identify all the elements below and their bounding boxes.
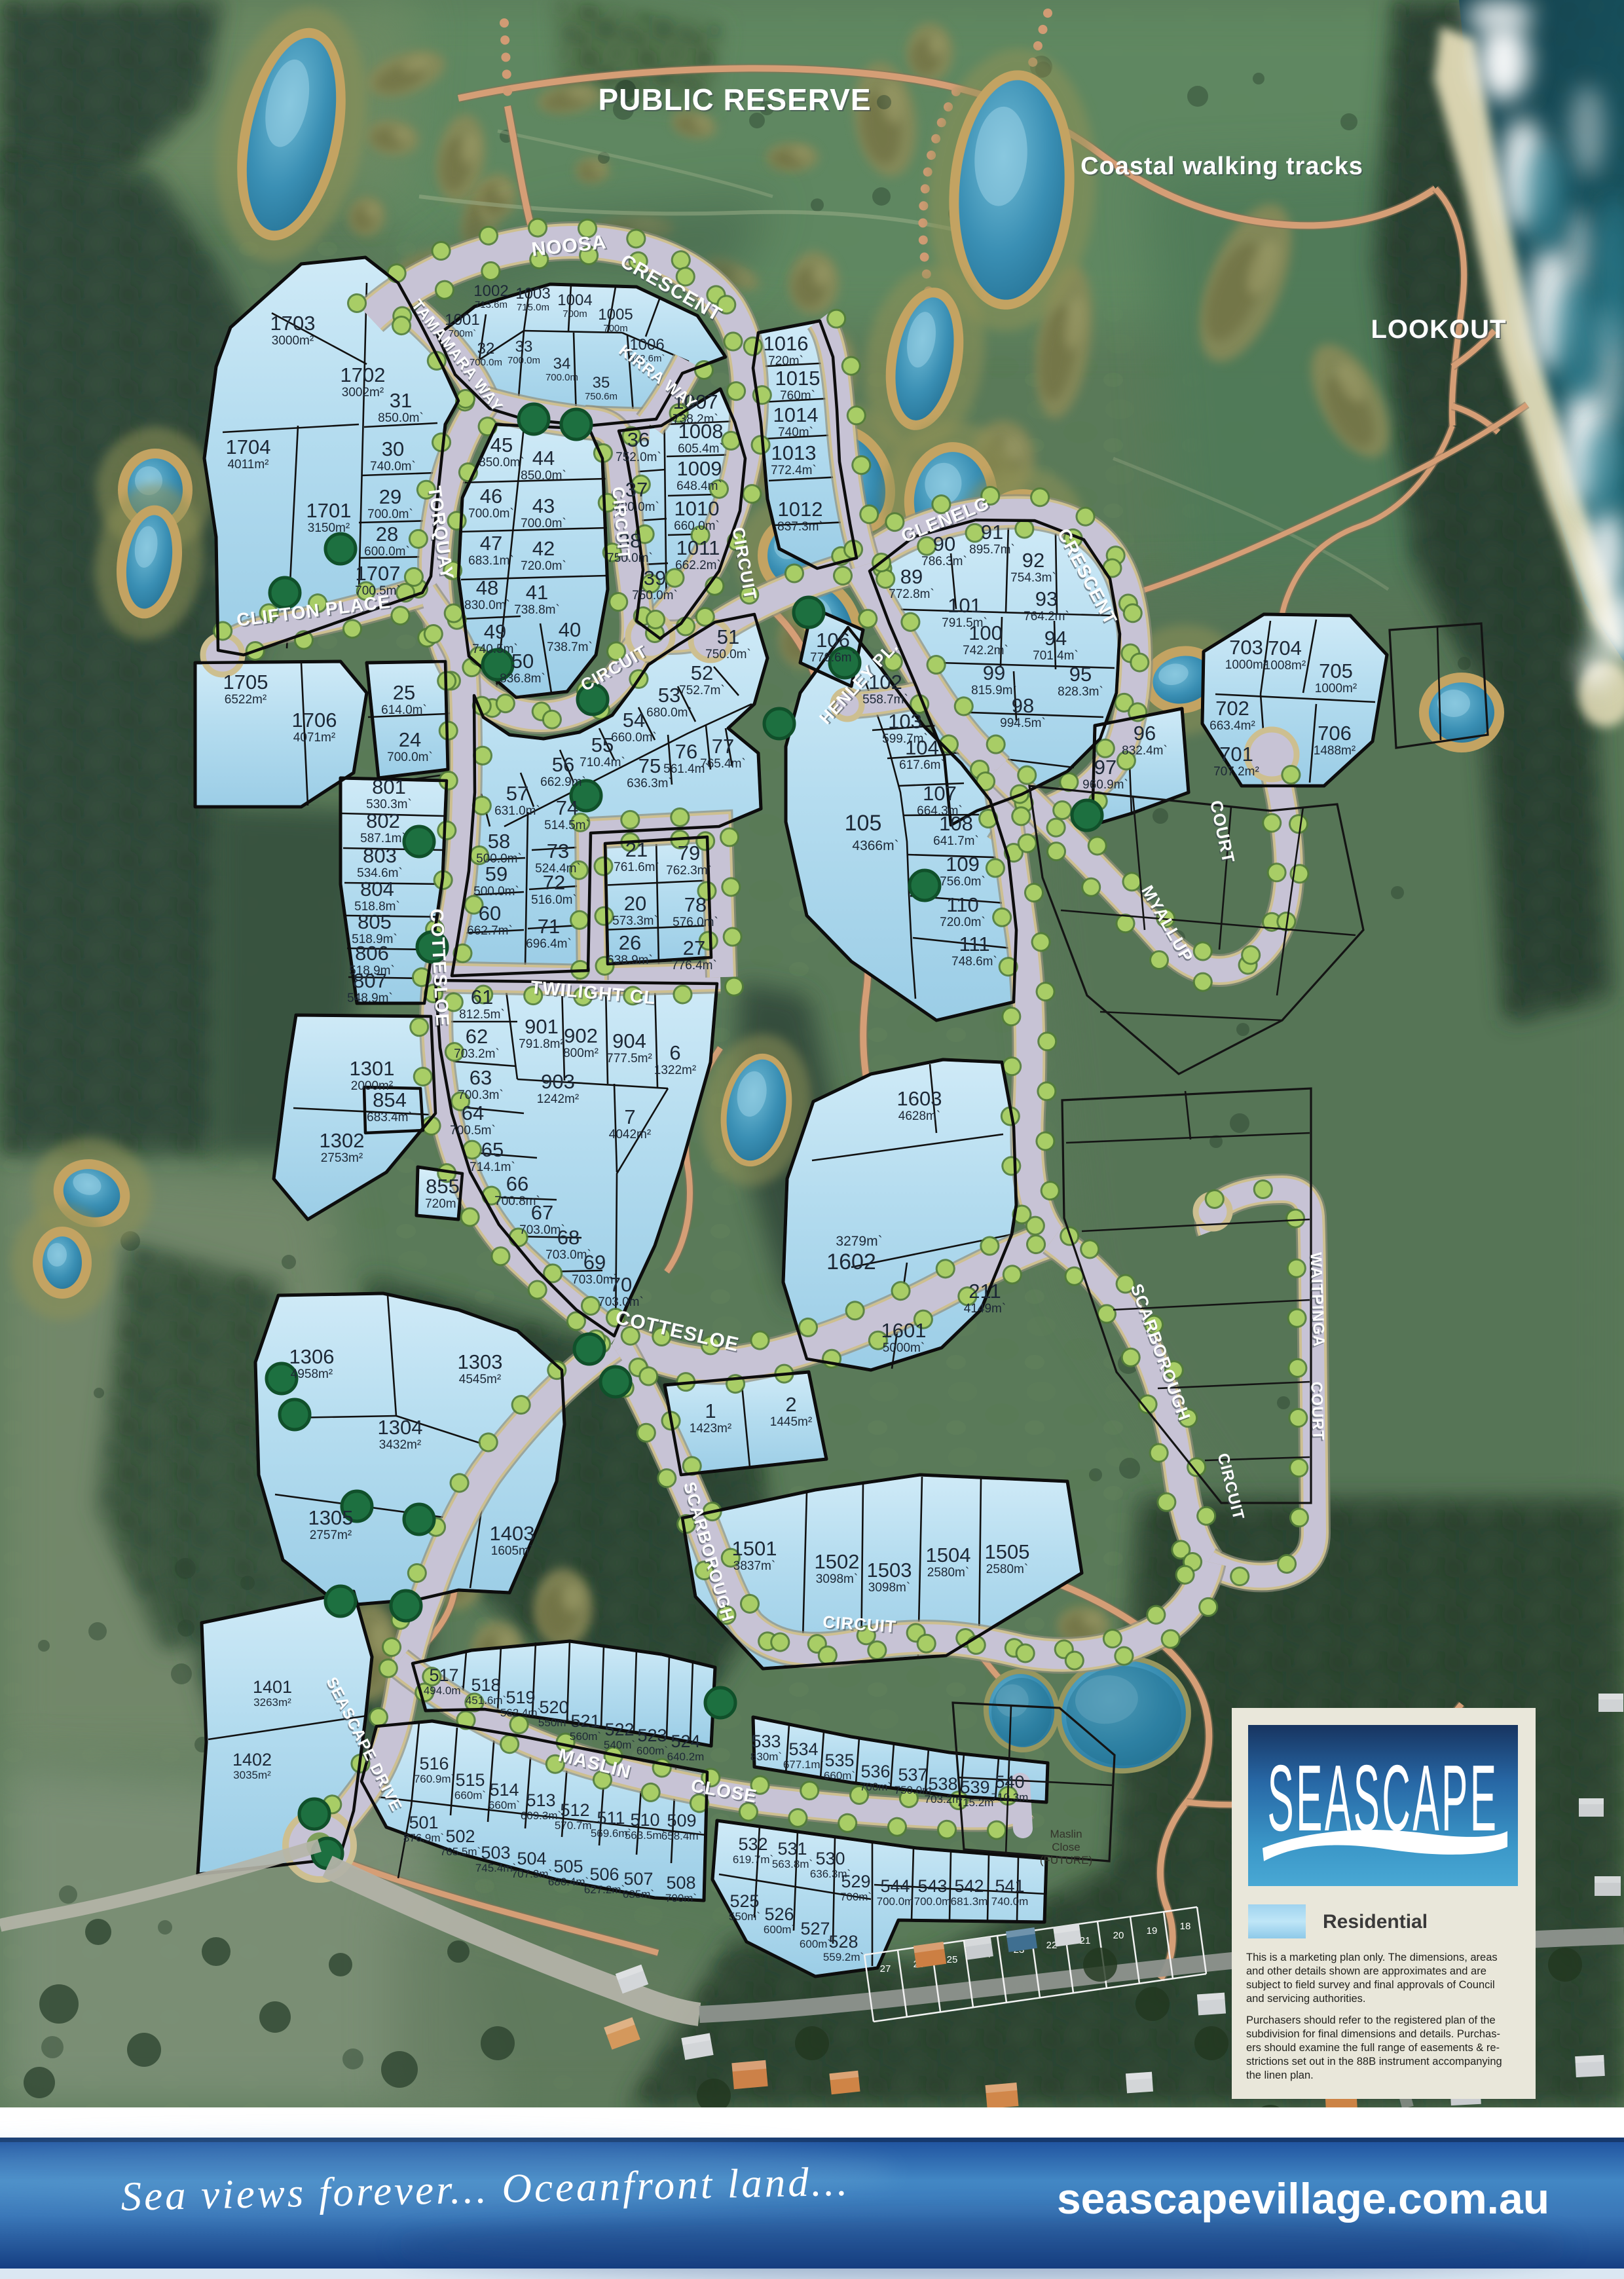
svg-text:700.3m`: 700.3m`	[458, 1088, 504, 1102]
svg-text:3150m²: 3150m²	[308, 521, 350, 535]
svg-text:786.3m`: 786.3m`	[921, 555, 967, 568]
svg-text:534: 534	[788, 1739, 818, 1759]
svg-text:54: 54	[623, 709, 645, 732]
svg-text:660m`: 660m`	[824, 1769, 855, 1782]
svg-text:600m`: 600m`	[637, 1745, 668, 1757]
svg-text:506: 506	[589, 1864, 619, 1884]
svg-text:1003: 1003	[515, 285, 550, 303]
svg-text:703: 703	[1229, 636, 1263, 659]
svg-text:533: 533	[751, 1732, 781, 1751]
svg-text:61: 61	[471, 986, 493, 1009]
svg-text:515: 515	[455, 1770, 485, 1790]
svg-text:101: 101	[948, 594, 982, 617]
svg-text:700.0m`: 700.0m`	[468, 507, 514, 521]
svg-text:75: 75	[638, 754, 661, 777]
svg-text:5000m`: 5000m`	[883, 1341, 925, 1355]
svg-text:70: 70	[610, 1273, 632, 1296]
svg-text:Residential: Residential	[1323, 1911, 1428, 1933]
svg-text:111: 111	[959, 933, 989, 955]
svg-text:527: 527	[800, 1919, 830, 1938]
svg-text:110: 110	[946, 893, 978, 916]
svg-text:700m: 700m	[563, 308, 587, 320]
svg-text:681.3m: 681.3m	[951, 1895, 988, 1908]
svg-text:31: 31	[390, 389, 412, 412]
svg-text:109: 109	[946, 853, 980, 876]
svg-text:1014: 1014	[773, 403, 819, 426]
svg-text:90: 90	[933, 532, 955, 555]
svg-text:1004: 1004	[557, 291, 592, 309]
svg-text:1005: 1005	[598, 306, 633, 324]
svg-text:503: 503	[481, 1843, 510, 1862]
svg-text:700.5m`: 700.5m`	[450, 1124, 496, 1138]
svg-text:96: 96	[1134, 722, 1156, 745]
svg-text:576.0m`: 576.0m`	[673, 916, 718, 929]
svg-text:710.3m: 710.3m	[991, 1791, 1029, 1804]
svg-text:99: 99	[983, 661, 1005, 684]
svg-text:2580m`: 2580m`	[986, 1563, 1028, 1576]
svg-text:660m`: 660m`	[454, 1789, 486, 1802]
svg-text:77: 77	[712, 735, 734, 758]
svg-text:59: 59	[485, 862, 507, 885]
svg-text:701: 701	[1219, 743, 1253, 766]
svg-text:765.5m`: 765.5m`	[440, 1845, 481, 1858]
svg-text:536: 536	[860, 1762, 890, 1781]
svg-text:1423m²: 1423m²	[690, 1422, 731, 1436]
svg-text:1011: 1011	[676, 536, 720, 559]
svg-text:3263m²: 3263m²	[253, 1696, 291, 1709]
svg-text:662.2m`: 662.2m`	[675, 559, 721, 572]
svg-text:51: 51	[717, 625, 739, 648]
svg-text:832.4m`: 832.4m`	[1122, 744, 1168, 758]
svg-text:39: 39	[644, 566, 666, 589]
svg-text:52: 52	[691, 661, 713, 684]
svg-text:750.0m`: 750.0m`	[632, 589, 678, 602]
svg-text:720m`: 720m`	[425, 1197, 460, 1211]
svg-text:7: 7	[624, 1105, 635, 1128]
svg-text:78: 78	[684, 893, 707, 916]
svg-text:658.4m`: 658.4m`	[661, 1830, 702, 1842]
svg-text:742.2m`: 742.2m`	[963, 644, 1008, 658]
svg-text:494.0m`: 494.0m`	[424, 1684, 464, 1697]
svg-text:76: 76	[675, 740, 697, 763]
svg-text:95: 95	[1069, 663, 1092, 686]
svg-text:6522m²: 6522m²	[225, 693, 267, 707]
svg-text:641.7m`: 641.7m`	[933, 834, 979, 848]
svg-text:1706: 1706	[292, 709, 337, 732]
svg-text:752.0m`: 752.0m`	[616, 451, 661, 464]
svg-text:538: 538	[928, 1774, 957, 1794]
svg-text:66: 66	[506, 1172, 528, 1195]
svg-text:804: 804	[360, 878, 394, 900]
svg-text:876.9m`: 876.9m`	[403, 1832, 444, 1844]
svg-text:1445m²: 1445m²	[770, 1415, 812, 1429]
svg-text:103: 103	[888, 710, 922, 733]
svg-text:1603: 1603	[897, 1087, 942, 1110]
svg-text:700m`: 700m`	[860, 1781, 891, 1793]
svg-text:PUBLIC RESERVE: PUBLIC RESERVE	[598, 83, 871, 117]
svg-text:35: 35	[593, 374, 610, 392]
svg-text:92: 92	[1022, 549, 1044, 572]
svg-text:27: 27	[880, 1963, 891, 1974]
svg-text:762.3m`: 762.3m`	[666, 864, 712, 878]
svg-text:26: 26	[619, 931, 641, 954]
svg-text:504: 504	[517, 1849, 546, 1868]
svg-text:529: 529	[841, 1872, 870, 1891]
svg-text:1242m²: 1242m²	[537, 1092, 579, 1106]
svg-text:4071m²: 4071m²	[293, 731, 335, 745]
svg-text:640.2m: 640.2m	[667, 1751, 705, 1763]
svg-text:1: 1	[705, 1399, 716, 1422]
svg-text:707.3m`: 707.3m`	[511, 1868, 552, 1880]
svg-text:537: 537	[898, 1765, 927, 1785]
svg-text:605.4m`: 605.4m`	[678, 442, 724, 456]
svg-text:Close: Close	[1052, 1841, 1080, 1853]
svg-text:67: 67	[531, 1201, 553, 1224]
svg-text:4042m²: 4042m²	[609, 1128, 651, 1141]
svg-text:91: 91	[981, 521, 1003, 544]
svg-text:570.7m`: 570.7m`	[555, 1819, 595, 1832]
svg-text:73: 73	[547, 840, 569, 862]
svg-text:700m`: 700m`	[665, 1892, 697, 1904]
svg-text:614.0m`: 614.0m`	[381, 703, 427, 717]
svg-text:94: 94	[1044, 627, 1067, 650]
svg-text:559.2m`: 559.2m`	[823, 1951, 864, 1963]
svg-text:520: 520	[539, 1697, 568, 1717]
svg-text:1009: 1009	[677, 457, 722, 480]
svg-text:1008m²: 1008m²	[1264, 659, 1306, 673]
svg-text:1401: 1401	[253, 1677, 292, 1697]
svg-text:1306: 1306	[289, 1345, 335, 1368]
svg-text:662.9m`: 662.9m`	[540, 775, 586, 789]
svg-text:550m`: 550m`	[538, 1716, 570, 1729]
svg-text:1705: 1705	[223, 671, 268, 694]
svg-text:521: 521	[570, 1711, 600, 1731]
svg-text:902: 902	[564, 1024, 598, 1047]
svg-text:24: 24	[399, 728, 421, 751]
svg-text:LOOKOUT: LOOKOUT	[1371, 315, 1507, 344]
svg-text:754.3m`: 754.3m`	[1010, 571, 1056, 585]
svg-text:68: 68	[557, 1226, 580, 1249]
svg-text:516: 516	[419, 1754, 449, 1773]
svg-text:This is a marketing plan only.: This is a marketing plan only. The dimen…	[1246, 1952, 1498, 1963]
svg-text:25: 25	[947, 1954, 958, 1965]
svg-text:3035m²: 3035m²	[233, 1769, 271, 1781]
svg-text:540: 540	[995, 1772, 1024, 1792]
svg-text:686.4m`: 686.4m`	[548, 1876, 589, 1888]
svg-text:1008: 1008	[678, 420, 724, 443]
svg-text:522: 522	[604, 1720, 634, 1739]
svg-text:895.7m`: 895.7m`	[969, 543, 1015, 557]
svg-text:1303: 1303	[458, 1350, 503, 1373]
svg-text:519: 519	[506, 1688, 535, 1707]
svg-text:512: 512	[560, 1800, 589, 1820]
svg-text:ers should examine the full ra: ers should examine the full range of eas…	[1246, 2042, 1500, 2054]
svg-text:72: 72	[543, 871, 565, 894]
svg-text:560m`: 560m`	[570, 1730, 601, 1743]
svg-text:1505: 1505	[985, 1540, 1030, 1563]
svg-text:777.5m²: 777.5m²	[606, 1052, 652, 1065]
svg-text:660.0m`: 660.0m`	[674, 519, 720, 533]
svg-text:1402: 1402	[232, 1750, 272, 1769]
svg-text:752.7m`: 752.7m`	[679, 684, 725, 697]
svg-text:805: 805	[358, 910, 392, 933]
svg-text:683.4m`: 683.4m`	[367, 1111, 413, 1124]
svg-text:563.5m`: 563.5m`	[625, 1829, 665, 1842]
svg-text:19: 19	[1147, 1925, 1158, 1936]
svg-text:715.0m: 715.0m	[517, 302, 549, 313]
svg-text:1016: 1016	[764, 332, 809, 355]
svg-text:(FUTURE): (FUTURE)	[1040, 1854, 1092, 1866]
svg-text:748.6m`: 748.6m`	[951, 955, 997, 969]
svg-text:1403: 1403	[490, 1522, 535, 1545]
svg-text:760.9m`: 760.9m`	[414, 1773, 454, 1785]
svg-text:663.4m²: 663.4m²	[1209, 719, 1255, 733]
svg-text:700.0m`: 700.0m`	[521, 517, 566, 530]
svg-text:631.0m`: 631.0m`	[494, 804, 540, 818]
svg-text:25: 25	[393, 681, 415, 704]
svg-text:617.6m`: 617.6m`	[899, 758, 945, 772]
svg-text:1001: 1001	[445, 311, 479, 329]
svg-text:1704: 1704	[226, 435, 271, 458]
svg-text:28: 28	[376, 523, 398, 546]
svg-text:the linen plan.: the linen plan.	[1246, 2069, 1314, 2081]
svg-text:71: 71	[538, 915, 560, 938]
svg-text:48: 48	[476, 576, 498, 599]
svg-text:43: 43	[532, 494, 555, 517]
svg-text:710.4m`: 710.4m`	[580, 756, 625, 769]
svg-text:211: 211	[969, 1280, 1001, 1303]
svg-text:662.7m`: 662.7m`	[467, 924, 513, 938]
svg-text:2757m²: 2757m²	[310, 1529, 352, 1542]
svg-text:41: 41	[526, 581, 548, 604]
svg-text:69: 69	[583, 1251, 606, 1274]
svg-text:901: 901	[525, 1015, 559, 1038]
svg-text:530: 530	[815, 1849, 845, 1868]
svg-text:108: 108	[939, 812, 973, 835]
svg-text:700.0m`: 700.0m`	[367, 508, 413, 521]
svg-text:696.4m`: 696.4m`	[526, 937, 572, 951]
svg-text:700.0m: 700.0m	[914, 1895, 951, 1908]
svg-text:715.2m: 715.2m	[957, 1796, 994, 1809]
svg-text:93: 93	[1035, 587, 1058, 610]
svg-text:2580m`: 2580m`	[927, 1566, 969, 1580]
svg-text:700m: 700m	[603, 323, 628, 334]
svg-text:761.6m`: 761.6m`	[614, 861, 659, 874]
svg-text:550m`: 550m`	[729, 1910, 760, 1923]
svg-text:760m`: 760m`	[780, 389, 815, 403]
svg-text:765.4m`: 765.4m`	[700, 757, 746, 771]
svg-text:107: 107	[923, 782, 957, 805]
svg-text:713.6m: 713.6m	[475, 299, 507, 310]
svg-text:29: 29	[379, 485, 401, 508]
svg-text:74: 74	[556, 796, 578, 819]
svg-text:532: 532	[738, 1834, 767, 1854]
svg-text:660.0m`: 660.0m`	[611, 731, 657, 745]
svg-text:635m`: 635m`	[623, 1888, 654, 1900]
svg-text:2000m²: 2000m²	[351, 1079, 393, 1093]
svg-text:53: 53	[658, 684, 680, 707]
svg-text:801: 801	[372, 775, 406, 798]
svg-text:Coastal walking tracks: Coastal walking tracks	[1080, 153, 1363, 180]
svg-text:3279m`: 3279m`	[836, 1234, 882, 1249]
svg-text:COURT: COURT	[1307, 1381, 1327, 1441]
svg-text:27: 27	[683, 936, 705, 959]
svg-text:1301: 1301	[350, 1057, 395, 1080]
svg-text:104: 104	[905, 736, 939, 759]
svg-text:524: 524	[671, 1732, 700, 1751]
svg-text:3837m`: 3837m`	[733, 1559, 775, 1573]
svg-text:518: 518	[471, 1675, 500, 1695]
svg-text:Purchasers should refer to the: Purchasers should refer to the registere…	[1246, 2014, 1496, 2026]
svg-text:1304: 1304	[378, 1416, 423, 1439]
svg-text:subdivision for final dimensio: subdivision for final dimensions and det…	[1246, 2028, 1500, 2040]
svg-text:702: 702	[1215, 697, 1249, 720]
svg-text:772.4m`: 772.4m`	[771, 464, 817, 477]
svg-text:638.9m`: 638.9m`	[607, 954, 653, 967]
svg-text:2: 2	[785, 1393, 796, 1416]
svg-text:701.4m`: 701.4m`	[1033, 649, 1079, 663]
svg-text:548.9m`: 548.9m`	[347, 991, 393, 1005]
svg-text:55: 55	[591, 733, 614, 756]
svg-text:1000m²: 1000m²	[1315, 682, 1357, 695]
svg-text:600.0m`: 600.0m`	[364, 545, 410, 559]
svg-text:3002m²: 3002m²	[342, 386, 384, 399]
svg-text:705: 705	[1319, 659, 1353, 682]
svg-text:4958m²: 4958m²	[291, 1367, 333, 1381]
svg-text:4628m`: 4628m`	[898, 1109, 940, 1123]
svg-text:50: 50	[511, 650, 534, 673]
svg-text:700m`: 700m`	[840, 1891, 872, 1903]
svg-text:627.2m`: 627.2m`	[584, 1883, 625, 1896]
svg-text:58: 58	[488, 830, 510, 853]
svg-text:523: 523	[637, 1726, 667, 1745]
svg-text:Maslin: Maslin	[1050, 1828, 1082, 1840]
svg-text:745.4m`: 745.4m`	[475, 1862, 516, 1874]
svg-text:1322m²: 1322m²	[654, 1064, 696, 1077]
svg-text:strictions set out in the 88B: strictions set out in the 88B instrument…	[1246, 2056, 1502, 2067]
svg-text:764.2m`: 764.2m`	[1024, 610, 1069, 623]
svg-text:531: 531	[777, 1839, 807, 1859]
svg-text:660m`: 660m`	[489, 1799, 520, 1811]
svg-text:1013: 1013	[771, 441, 817, 464]
svg-text:776.4m`: 776.4m`	[671, 959, 717, 973]
svg-text:525: 525	[729, 1891, 759, 1911]
svg-text:850.0m`: 850.0m`	[479, 456, 525, 470]
svg-text:740m`: 740m`	[778, 426, 813, 439]
svg-text:4149m`: 4149m`	[964, 1302, 1006, 1316]
svg-text:1010: 1010	[674, 497, 720, 520]
svg-text:636.3m`: 636.3m`	[627, 777, 673, 790]
svg-text:850.0m`: 850.0m`	[378, 411, 424, 425]
svg-text:WAITPINGA: WAITPINGA	[1306, 1252, 1327, 1348]
svg-text:683.1m`: 683.1m`	[468, 554, 514, 568]
svg-text:1707: 1707	[356, 562, 401, 585]
svg-text:30: 30	[382, 437, 404, 460]
svg-text:807: 807	[353, 969, 387, 992]
svg-text:994.5m`: 994.5m`	[1000, 716, 1046, 730]
svg-text:49: 49	[484, 620, 506, 643]
svg-text:541: 541	[995, 1876, 1024, 1896]
svg-text:1503: 1503	[867, 1559, 912, 1582]
svg-text:21: 21	[625, 838, 648, 861]
svg-text:1015: 1015	[775, 367, 821, 390]
svg-text:3098m`: 3098m`	[816, 1572, 858, 1586]
svg-text:514: 514	[489, 1780, 519, 1800]
svg-text:720.0m`: 720.0m`	[940, 916, 986, 929]
svg-text:501: 501	[409, 1813, 438, 1832]
svg-text:815.9m`: 815.9m`	[971, 684, 1017, 697]
svg-text:and other details shown are ap: and other details shown are approximates…	[1246, 1965, 1486, 1977]
svg-text:508: 508	[666, 1873, 695, 1893]
svg-text:65: 65	[481, 1138, 504, 1161]
svg-text:703.2m`: 703.2m`	[454, 1047, 500, 1061]
svg-text:750.6m: 750.6m	[585, 391, 618, 402]
svg-text:516.0m`: 516.0m`	[531, 893, 577, 907]
svg-text:1501: 1501	[732, 1537, 777, 1560]
svg-text:6: 6	[669, 1041, 680, 1064]
svg-text:1502: 1502	[815, 1550, 860, 1573]
svg-text:507: 507	[623, 1869, 653, 1889]
svg-text:750.0m`: 750.0m`	[705, 648, 751, 661]
svg-text:3432m²: 3432m²	[379, 1438, 421, 1452]
svg-text:64: 64	[462, 1102, 484, 1124]
svg-text:563.8m`: 563.8m`	[772, 1858, 813, 1870]
svg-text:47: 47	[480, 532, 502, 555]
svg-text:542: 542	[954, 1876, 984, 1896]
svg-text:1701: 1701	[306, 499, 352, 522]
svg-text:subject to field survey and fi: subject to field survey and final approv…	[1246, 1979, 1495, 1991]
svg-text:1302: 1302	[320, 1129, 365, 1152]
svg-text:34: 34	[553, 355, 571, 373]
svg-text:543: 543	[917, 1876, 947, 1896]
svg-text:510: 510	[630, 1810, 659, 1830]
svg-text:526: 526	[764, 1904, 794, 1924]
svg-text:3000m²: 3000m²	[272, 334, 314, 348]
svg-text:720.0m`: 720.0m`	[521, 559, 566, 573]
svg-text:97: 97	[1094, 756, 1116, 779]
svg-text:772.8m`: 772.8m`	[889, 587, 934, 601]
svg-text:1601: 1601	[881, 1319, 927, 1342]
svg-text:1702: 1702	[341, 363, 386, 386]
svg-text:45: 45	[490, 434, 513, 456]
svg-text:1703: 1703	[270, 312, 316, 335]
svg-text:836.8m`: 836.8m`	[500, 672, 545, 686]
svg-text:740.0m: 740.0m	[991, 1895, 1029, 1908]
svg-text:800m²: 800m²	[563, 1047, 599, 1060]
svg-text:89: 89	[900, 565, 923, 588]
svg-text:828.3m`: 828.3m`	[1058, 685, 1103, 699]
svg-text:42: 42	[532, 537, 555, 560]
svg-text:1504: 1504	[926, 1544, 971, 1566]
svg-text:32: 32	[477, 340, 495, 358]
svg-text:500.0m`: 500.0m`	[473, 885, 519, 899]
svg-text:680.0m`: 680.0m`	[646, 706, 692, 720]
svg-text:720m`: 720m`	[768, 354, 803, 368]
svg-text:707.2m²: 707.2m²	[1213, 765, 1259, 779]
svg-text:60: 60	[479, 902, 501, 925]
svg-text:1488m²: 1488m²	[1314, 744, 1356, 758]
svg-text:850.0m`: 850.0m`	[521, 469, 566, 483]
svg-text:648.4m`: 648.4m`	[676, 479, 722, 493]
svg-text:812.5m`: 812.5m`	[459, 1008, 505, 1022]
svg-text:539: 539	[960, 1777, 989, 1797]
svg-text:517: 517	[429, 1665, 458, 1685]
svg-text:seascapevillage.com.au: seascapevillage.com.au	[1057, 2174, 1549, 2223]
svg-text:63: 63	[470, 1066, 492, 1089]
svg-text:513: 513	[526, 1790, 555, 1810]
svg-text:573.3m`: 573.3m`	[612, 914, 658, 928]
svg-text:806: 806	[355, 942, 389, 965]
